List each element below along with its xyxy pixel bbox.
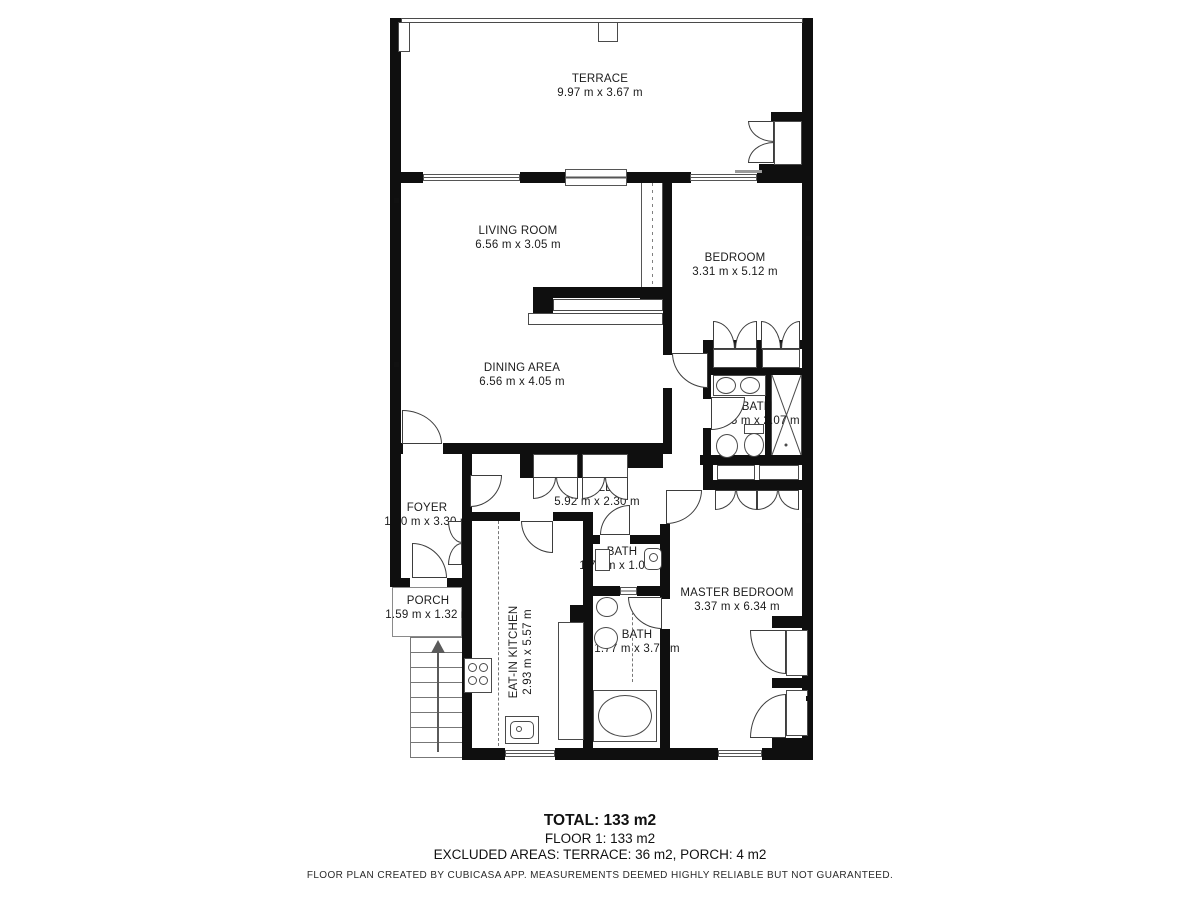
room-label-eat-in-kitchen: EAT-IN KITCHEN 2.93 m x 5.57 m <box>507 606 535 699</box>
closet-box <box>759 465 799 480</box>
kitchen-sink-basin <box>510 721 534 739</box>
door-arc <box>750 630 786 674</box>
wall-segment <box>583 512 593 760</box>
wall-segment <box>772 678 812 688</box>
stair-direction-arrow <box>437 652 439 752</box>
room-name: PORCH <box>385 594 470 608</box>
wall-segment <box>630 535 663 544</box>
room-name: LIVING ROOM <box>475 224 560 238</box>
room-dims: 6.56 m x 4.05 m <box>479 375 564 389</box>
closet-box <box>533 454 578 478</box>
wall-segment <box>570 605 587 622</box>
wall-segment <box>759 164 803 176</box>
room-label-porch: PORCH 1.59 m x 1.32 m <box>385 594 470 622</box>
room-name: BEDROOM <box>692 251 777 265</box>
closet-box <box>717 465 755 480</box>
door-arc <box>470 475 502 507</box>
wall-segment <box>703 465 713 490</box>
closet-box <box>774 121 802 165</box>
door-arc <box>600 505 630 535</box>
window <box>505 750 555 757</box>
wall-segment <box>447 578 472 587</box>
wall-tick <box>394 362 399 367</box>
media-console <box>553 299 663 311</box>
toilet-bowl <box>744 433 764 457</box>
stove-burner <box>479 663 488 672</box>
sink-basin <box>594 627 618 649</box>
room-dims: 9.97 m x 3.67 m <box>557 86 642 100</box>
door-arc <box>533 477 556 499</box>
disclaimer-text: FLOOR PLAN CREATED BY CUBICASA APP. MEAS… <box>0 870 1200 881</box>
closet-box <box>786 690 808 736</box>
wall-segment <box>593 535 600 544</box>
wall-segment <box>660 629 670 748</box>
wall-segment <box>390 443 403 454</box>
wall-segment <box>553 287 663 298</box>
door-arc <box>402 410 442 444</box>
window <box>423 174 520 181</box>
closet-box <box>713 349 757 368</box>
wall-segment <box>390 578 410 587</box>
room-dims: 2.93 m x 5.57 m <box>521 606 535 699</box>
floorplan-page: TERRACE 9.97 m x 3.67 m LIVING ROOM 6.56… <box>0 0 1200 900</box>
wall-segment <box>713 480 812 490</box>
wall-segment <box>593 748 663 760</box>
room-label-living-room: LIVING ROOM 6.56 m x 3.05 m <box>475 224 560 252</box>
wall-segment <box>472 512 520 521</box>
wall-tick <box>394 198 399 203</box>
room-label-bedroom: BEDROOM 3.31 m x 5.12 m <box>692 251 777 279</box>
door-arc <box>761 321 781 349</box>
room-label-terrace: TERRACE 9.97 m x 3.67 m <box>557 72 642 100</box>
room-name: DINING AREA <box>479 361 564 375</box>
wall-segment <box>520 443 534 478</box>
window <box>620 587 637 595</box>
wall-segment <box>663 748 718 760</box>
sink-basin <box>740 377 760 394</box>
closet-box <box>762 349 800 368</box>
wall-segment <box>593 586 620 596</box>
sink-basin <box>596 597 618 617</box>
thin-wall-line <box>735 170 762 173</box>
wall-notch <box>398 22 410 52</box>
sliding-partition <box>641 183 663 287</box>
room-label-dining-area: DINING AREA 6.56 m x 4.05 m <box>479 361 564 389</box>
window <box>690 174 757 181</box>
excluded-areas-text: EXCLUDED AREAS: TERRACE: 36 m2, PORCH: 4… <box>0 847 1200 862</box>
door-arc <box>448 543 462 565</box>
door-arc <box>748 142 774 163</box>
stair-direction-arrowhead <box>431 640 445 653</box>
room-dims: 1.59 m x 1.32 m <box>385 608 470 622</box>
wall-segment <box>703 368 803 375</box>
door-arc <box>736 490 757 510</box>
floor-plan-canvas: TERRACE 9.97 m x 3.67 m LIVING ROOM 6.56… <box>0 0 1200 900</box>
window <box>565 169 627 186</box>
door-arc <box>448 521 462 543</box>
window <box>718 750 762 757</box>
wall-segment <box>772 738 812 750</box>
room-dims: 6.56 m x 3.05 m <box>475 238 560 252</box>
wall-segment <box>703 428 711 457</box>
door-arc <box>757 490 778 510</box>
room-dims: 3.37 m x 6.34 m <box>680 600 793 614</box>
counter-dashed-line <box>498 521 500 746</box>
room-name: TERRACE <box>557 72 642 86</box>
kitchen-counter <box>558 622 584 740</box>
stove <box>464 658 492 693</box>
stove-burner <box>468 676 477 685</box>
door-arc <box>521 521 553 553</box>
wall-segment <box>627 172 691 183</box>
door-arc <box>778 490 799 510</box>
terrace-pillar <box>598 22 618 42</box>
room-name: MASTER BEDROOM <box>680 586 793 600</box>
closet-box <box>582 454 628 478</box>
toilet-bowl <box>649 553 658 562</box>
door-arc <box>748 121 774 142</box>
sink-basin <box>716 377 736 394</box>
wall-tick <box>806 696 811 701</box>
door-arc <box>715 490 736 510</box>
door-arc <box>781 321 800 349</box>
room-dims: 3.31 m x 5.12 m <box>692 265 777 279</box>
bidet <box>716 434 738 458</box>
room-label-master-bedroom: MASTER BEDROOM 3.37 m x 6.34 m <box>680 586 793 614</box>
wall-segment <box>390 172 423 183</box>
bath-sink <box>595 549 610 571</box>
door-arc <box>750 694 786 738</box>
floor-area-text: FLOOR 1: 133 m2 <box>0 831 1200 846</box>
stove-burner <box>479 676 488 685</box>
stove-burner <box>468 663 477 672</box>
counter-dashed-line <box>632 612 634 682</box>
door-arc <box>735 321 757 349</box>
wall-segment <box>663 183 672 355</box>
wall-segment <box>390 18 401 587</box>
bathtub-basin <box>598 695 652 737</box>
wall-tick <box>806 236 811 241</box>
room-name: EAT-IN KITCHEN <box>507 606 521 699</box>
faucet-dot <box>516 726 522 732</box>
wall-tick <box>806 518 811 523</box>
total-area-text: TOTAL: 133 m2 <box>0 812 1200 830</box>
door-arc <box>713 321 735 349</box>
media-console <box>528 313 663 325</box>
door-arc <box>666 490 702 524</box>
staircase <box>410 637 468 758</box>
wall-segment <box>555 748 593 760</box>
door-arc <box>412 543 447 578</box>
wall-segment <box>627 443 663 468</box>
closet-box <box>786 630 808 676</box>
door-arc <box>672 353 708 388</box>
wall-segment <box>772 616 812 628</box>
wall-segment <box>462 748 505 760</box>
